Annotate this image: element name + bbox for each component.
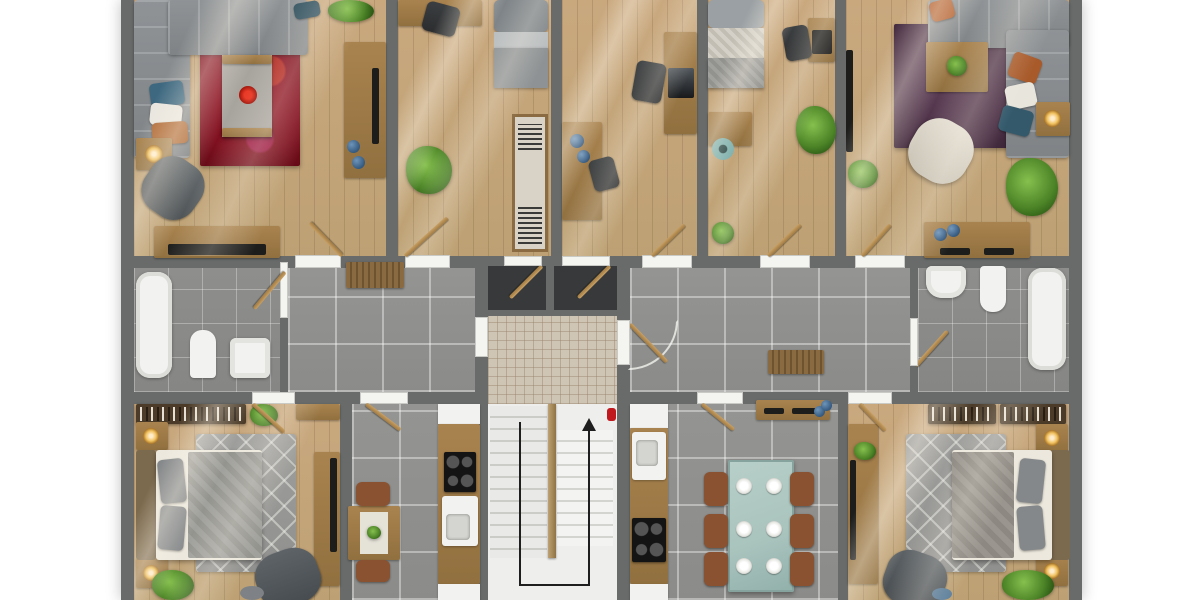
sink-basin: [636, 440, 658, 466]
door-threshold: [760, 255, 810, 268]
stair-flight-right: [557, 430, 613, 546]
wardrobe-hangers: [518, 206, 542, 244]
bathtub: [1028, 268, 1066, 370]
table-lamp: [1044, 110, 1061, 127]
up-arrow-icon: [582, 418, 596, 431]
door-threshold: [848, 392, 892, 404]
door-threshold: [295, 255, 341, 268]
decor-blue: [821, 400, 832, 411]
flower-centerpiece: [239, 86, 257, 104]
door-threshold: [617, 320, 630, 365]
books: [932, 407, 992, 421]
plant: [328, 0, 374, 22]
plant: [712, 222, 734, 244]
wardrobe-hangers: [518, 124, 542, 150]
office-chair: [781, 24, 813, 62]
place-setting: [736, 558, 752, 574]
table-lamp: [143, 428, 159, 444]
kitchen-cabinet: [438, 404, 480, 424]
stair-divider: [548, 404, 556, 558]
monitor: [812, 30, 832, 54]
decor-blue: [947, 224, 960, 237]
floorplan-canvas: [0, 0, 1200, 600]
plant: [854, 442, 876, 460]
plant: [1002, 570, 1054, 600]
dining-chair: [790, 552, 814, 586]
door-threshold: [562, 256, 610, 266]
door-threshold: [405, 255, 450, 268]
ottoman: [240, 586, 264, 600]
sideboard-item: [764, 408, 784, 414]
bed-pillow: [708, 0, 764, 28]
direction-path: [588, 430, 590, 586]
daybed-pillow: [494, 0, 548, 32]
fridge: [630, 404, 668, 428]
dining-chair: [790, 514, 814, 548]
sideboard-item: [792, 408, 816, 414]
coffee-table-edge: [222, 55, 272, 64]
stool-blue: [347, 140, 360, 153]
coffee-table-edge: [222, 128, 272, 137]
direction-path: [519, 422, 521, 586]
toilet: [980, 266, 1006, 312]
plant: [947, 56, 967, 76]
bed-pillow: [1016, 458, 1046, 504]
place-setting: [766, 521, 782, 537]
single-bed-foot: [708, 58, 764, 88]
toilet: [190, 330, 216, 378]
bed-duvet: [952, 452, 1014, 558]
tv-panel: [846, 50, 853, 152]
cooktop: [444, 452, 476, 492]
single-bed-duvet: [708, 28, 764, 58]
sideboard-front: [168, 244, 266, 255]
stool-teal: [712, 138, 734, 160]
place-setting: [766, 558, 782, 574]
bed-pillow: [1016, 505, 1046, 551]
plant: [1006, 158, 1058, 216]
door-threshold: [910, 318, 918, 366]
door-threshold: [252, 392, 295, 404]
plant: [152, 570, 194, 600]
bed-headboard: [1050, 450, 1070, 560]
washbasin: [230, 338, 270, 378]
wall-shelf: [296, 404, 340, 420]
direction-path: [519, 584, 590, 586]
cooktop: [632, 518, 666, 562]
dining-chair: [704, 552, 728, 586]
dining-chair: [704, 514, 728, 548]
hall-bench: [346, 262, 404, 288]
kitchen-cabinet: [630, 584, 668, 600]
dining-chair: [356, 482, 390, 506]
media-console: [344, 42, 386, 178]
dining-chair: [356, 560, 390, 582]
bathtub: [136, 272, 172, 378]
door-threshold: [642, 255, 692, 268]
kitchen-cabinet: [438, 584, 480, 600]
laptop: [668, 68, 694, 98]
place-setting: [736, 521, 752, 537]
bed-duvet: [188, 452, 262, 558]
washbasin: [926, 266, 966, 298]
ottoman: [932, 588, 952, 600]
place-setting: [766, 478, 782, 494]
daybed-blanket: [494, 32, 548, 48]
stair-landing: [488, 316, 617, 404]
console-front: [984, 248, 1014, 255]
tv-panel: [330, 458, 337, 552]
plant: [796, 106, 836, 154]
bed-pillow: [157, 505, 187, 551]
desk-decor-blue: [577, 150, 590, 163]
plant: [406, 146, 452, 194]
tv-panel: [372, 68, 379, 144]
dining-chair: [790, 472, 814, 506]
place-setting: [736, 478, 752, 494]
tv-panel: [850, 460, 856, 560]
bed-pillow: [157, 458, 187, 504]
stool-blue: [352, 156, 365, 169]
door-threshold: [475, 317, 488, 357]
plant: [848, 160, 878, 188]
books: [140, 407, 242, 421]
decor-blue: [934, 228, 947, 241]
table-lamp: [1044, 430, 1060, 446]
door-threshold: [504, 256, 542, 266]
sink-basin: [446, 514, 470, 540]
dining-chair: [704, 472, 728, 506]
daybed: [494, 48, 548, 88]
books: [1004, 407, 1062, 421]
plant: [367, 526, 381, 539]
console-front: [940, 248, 970, 255]
fire-extinguisher-icon: [607, 408, 616, 421]
hall-bench: [768, 350, 824, 374]
sofa-sectional-top: [168, 0, 308, 55]
desk-decor-blue: [570, 134, 584, 148]
bed-headboard: [136, 450, 156, 560]
